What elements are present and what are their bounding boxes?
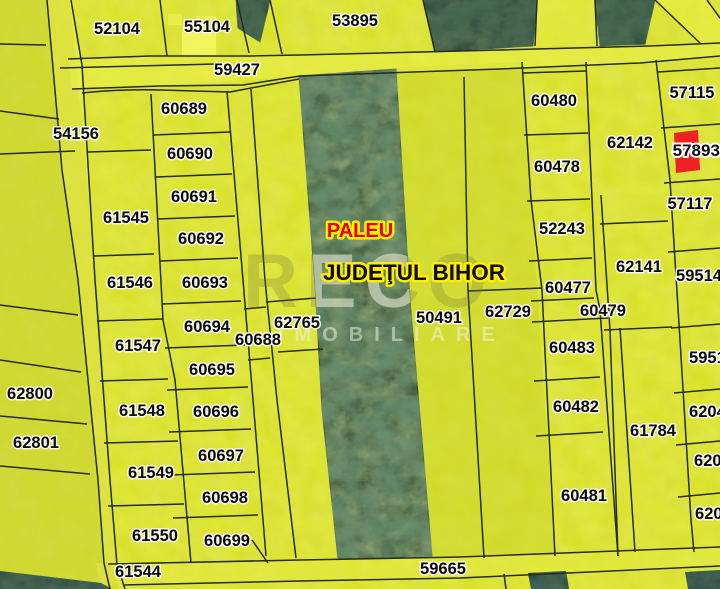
svg-text:62801: 62801 <box>13 434 59 452</box>
svg-text:61544: 61544 <box>115 563 162 581</box>
svg-text:60478: 60478 <box>534 158 580 176</box>
svg-text:60691: 60691 <box>171 188 217 206</box>
svg-text:60699: 60699 <box>204 532 250 550</box>
svg-text:60482: 60482 <box>553 398 599 416</box>
svg-text:55104: 55104 <box>184 18 231 36</box>
svg-text:61550: 61550 <box>132 527 178 545</box>
svg-text:61784: 61784 <box>630 422 677 440</box>
svg-text:59665: 59665 <box>420 560 466 578</box>
svg-text:52104: 52104 <box>94 20 141 38</box>
svg-text:60695: 60695 <box>189 361 235 379</box>
svg-text:62729: 62729 <box>485 303 531 321</box>
svg-text:62141: 62141 <box>616 258 662 276</box>
svg-text:50491: 50491 <box>416 309 462 327</box>
svg-text:PALEU: PALEU <box>327 220 393 242</box>
svg-text:60688: 60688 <box>235 331 281 349</box>
svg-text:60479: 60479 <box>580 302 626 320</box>
svg-text:61547: 61547 <box>115 337 161 355</box>
svg-text:JUDEŢUL BIHOR: JUDEŢUL BIHOR <box>323 260 505 285</box>
svg-text:62800: 62800 <box>7 385 53 403</box>
svg-text:60694: 60694 <box>184 318 231 336</box>
svg-text:61545: 61545 <box>103 209 149 227</box>
svg-text:60696: 60696 <box>193 403 239 421</box>
svg-text:60480: 60480 <box>531 92 577 110</box>
svg-text:60689: 60689 <box>161 100 207 118</box>
svg-text:62043: 62043 <box>689 403 720 421</box>
svg-text:59515: 59515 <box>689 349 720 367</box>
svg-text:57115: 57115 <box>670 84 715 102</box>
svg-text:62044: 62044 <box>694 452 720 470</box>
svg-text:53895: 53895 <box>332 12 378 30</box>
svg-text:61549: 61549 <box>128 464 174 482</box>
svg-text:59427: 59427 <box>214 61 260 79</box>
svg-text:578938: 578938 <box>673 141 720 160</box>
svg-text:59514: 59514 <box>676 267 720 285</box>
svg-text:54156: 54156 <box>53 125 99 143</box>
svg-text:60693: 60693 <box>182 274 228 292</box>
svg-text:60481: 60481 <box>561 487 607 505</box>
svg-text:57117: 57117 <box>668 195 713 213</box>
svg-text:61548: 61548 <box>119 402 165 420</box>
svg-text:62142: 62142 <box>607 134 653 152</box>
svg-text:60690: 60690 <box>167 145 213 163</box>
svg-text:62045: 62045 <box>695 505 720 523</box>
svg-text:62765: 62765 <box>274 314 320 332</box>
svg-text:60477: 60477 <box>545 279 591 297</box>
svg-text:60692: 60692 <box>178 230 224 248</box>
svg-text:52243: 52243 <box>539 220 585 238</box>
svg-text:61546: 61546 <box>107 274 153 292</box>
svg-text:60698: 60698 <box>202 489 248 507</box>
svg-text:60697: 60697 <box>198 447 244 465</box>
svg-text:60483: 60483 <box>549 339 595 357</box>
